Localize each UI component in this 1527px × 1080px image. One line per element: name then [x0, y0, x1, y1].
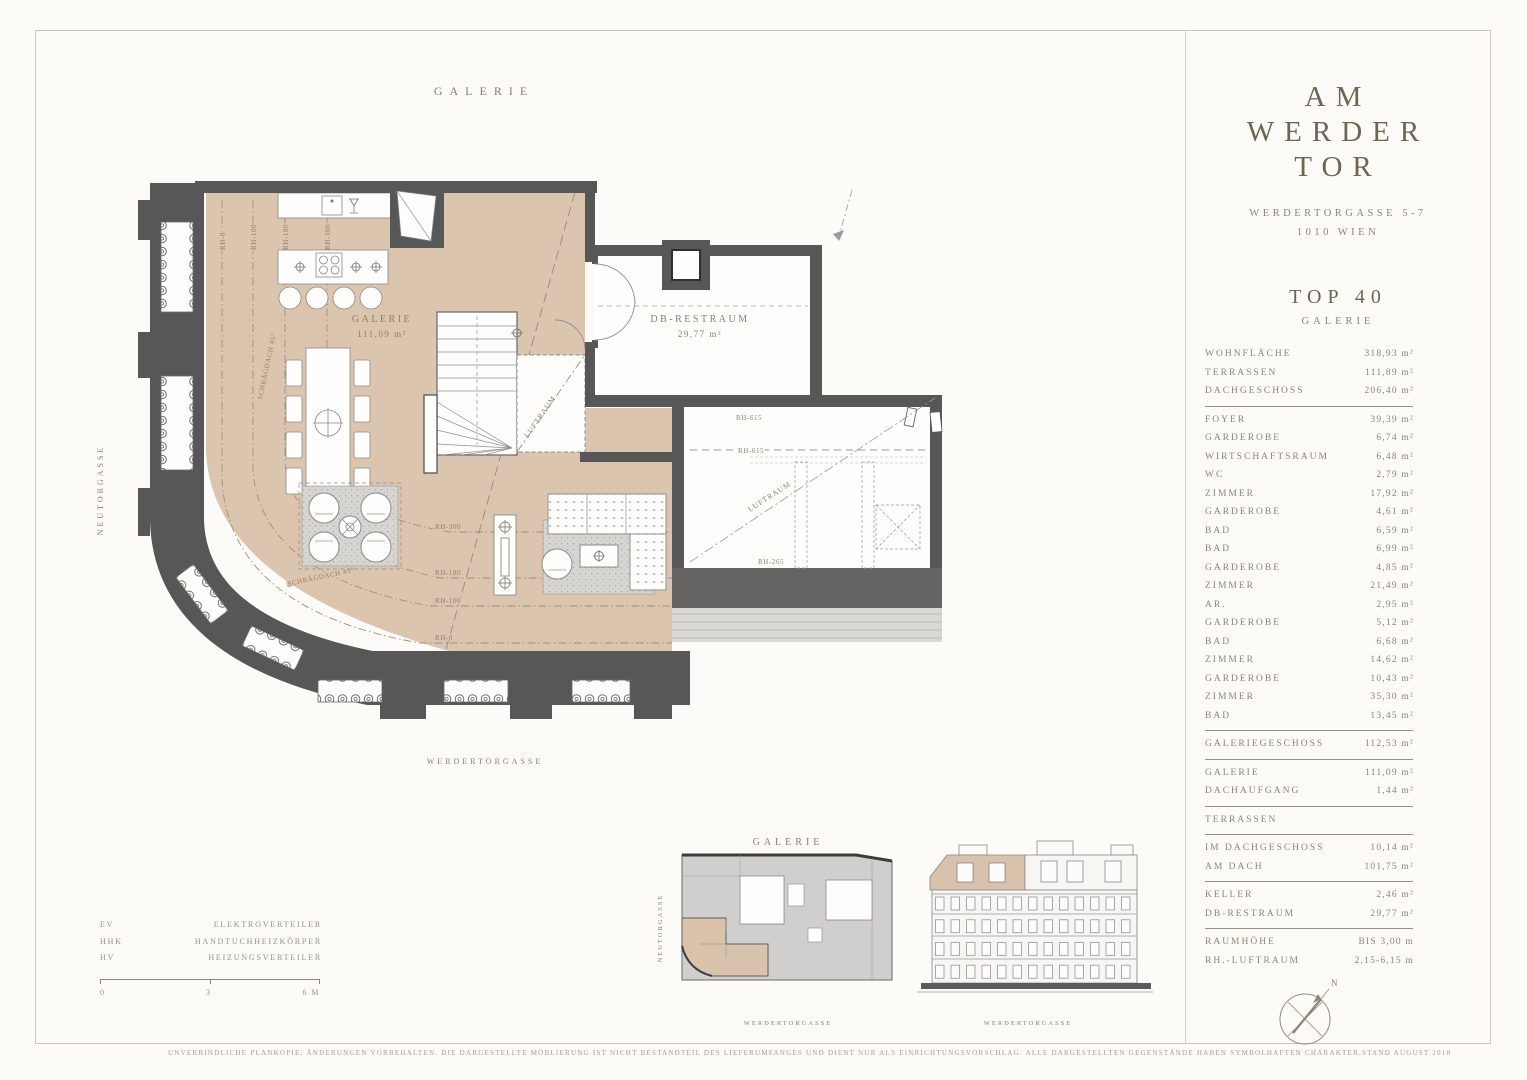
room-label: DACHGESCHOSS [1205, 382, 1305, 401]
stair-wall-stub [424, 395, 437, 473]
room-area-value: 6,48 m² [1376, 448, 1414, 467]
disclaimer-row: UNVERBINDLICHE PLANKOPIE, ÄNDERUNGEN VOR… [168, 1049, 1402, 1057]
legend-label: ELEKTROVERTEILER [214, 917, 322, 934]
svg-text:RH-180: RH-180 [282, 224, 290, 250]
svg-text:RH-100: RH-100 [250, 224, 258, 250]
room-area-value: 39,39 m² [1370, 411, 1414, 430]
room-area-value: 2,79 m² [1376, 466, 1414, 485]
area-row: GARDEROBE4,85 m² [1205, 559, 1413, 578]
legend-abbr: EV [100, 917, 114, 934]
area-row: GARDEROBE5,12 m² [1205, 614, 1413, 633]
room-area-value: 2,15-6,15 m [1355, 952, 1414, 971]
room-area-value: 4,61 m² [1376, 503, 1414, 522]
plan-title: GALERIE [434, 84, 534, 98]
area-row: WOHNFLÄCHE318,93 m² [1205, 345, 1413, 364]
room-label: ZIMMER [1205, 577, 1255, 596]
room-label: BAD [1205, 707, 1231, 726]
floor-plan: GALERIE RH-0 RH-100 RH-180 RH-300 RH-0 R… [50, 50, 1030, 790]
room-area-value: BIS 3,00 m [1358, 933, 1414, 952]
scale-mid: 3 [206, 988, 212, 997]
room-label: BAD [1205, 633, 1231, 652]
area-row: AM DACH101,75 m² [1205, 858, 1413, 877]
svg-text:RH-265: RH-265 [758, 558, 784, 566]
legend-row: HHKHANDTUCHHEIZKÖRPER [100, 934, 322, 951]
logo-line: AM [1186, 80, 1490, 115]
area-row: AR.2,95 m² [1205, 596, 1413, 615]
svg-text:RH-300: RH-300 [435, 523, 461, 531]
terrace-door [390, 184, 444, 248]
svg-text:RH-615: RH-615 [738, 447, 764, 455]
compass-rose: N [1255, 972, 1365, 1057]
room-label: WOHNFLÄCHE [1205, 345, 1292, 364]
room-area-value: 318,93 m² [1364, 345, 1414, 364]
area-row: GARDEROBE10,43 m² [1205, 670, 1413, 689]
svg-text:29,77 m²: 29,77 m² [678, 329, 722, 339]
area-row: GALERIE111,09 m² [1205, 764, 1413, 783]
room-area-value: 6,99 m² [1376, 540, 1414, 559]
chimney [662, 240, 710, 290]
area-row: TERRASSEN [1205, 811, 1413, 830]
room-area-value: 6,59 m² [1376, 522, 1414, 541]
legend-row: HVHEIZUNGSVERTEILER [100, 950, 322, 967]
area-row: RH.-LUFTRAUM2,15-6,15 m [1205, 952, 1413, 971]
address-line: WERDERTORGASSE 5-7 [1186, 204, 1490, 223]
room-label: AM DACH [1205, 858, 1264, 877]
room-label: BAD [1205, 522, 1231, 541]
room-area-value: 206,40 m² [1364, 382, 1414, 401]
address-line: 1010 WIEN [1186, 223, 1490, 242]
room-label: WC [1205, 466, 1224, 485]
svg-text:RH-300: RH-300 [324, 224, 332, 250]
room-label: GALERIE [1205, 764, 1260, 783]
room-area-value: 112,53 m² [1365, 735, 1414, 754]
towel-radiator [494, 515, 516, 595]
svg-text:RH-100: RH-100 [435, 597, 461, 605]
area-row: DACHAUFGANG1,44 m² [1205, 782, 1413, 801]
room-area-value: 2,46 m² [1376, 886, 1414, 905]
svg-text:RH-0: RH-0 [219, 232, 227, 250]
lounge-seating [299, 483, 401, 569]
staircase [424, 312, 523, 473]
table-divider [1205, 806, 1413, 807]
room-area-value: 17,92 m² [1370, 485, 1414, 504]
legend-label: HANDTUCHHEIZKÖRPER [195, 934, 322, 951]
room-area-value: 13,45 m² [1370, 707, 1414, 726]
room-area-value: 111,89 m² [1365, 364, 1414, 383]
room-label: GARDEROBE [1205, 670, 1281, 689]
area-row: GALERIEGESCHOSS112,53 m² [1205, 735, 1413, 754]
revision-date: STAND AUGUST 2018 [1362, 1049, 1451, 1057]
area-row: BAD6,68 m² [1205, 633, 1413, 652]
room-label: GARDEROBE [1205, 503, 1281, 522]
room-area-value: 6,74 m² [1376, 429, 1414, 448]
area-row: BAD6,99 m² [1205, 540, 1413, 559]
logo-line: WERDER [1186, 115, 1490, 150]
area-row: RAUMHÖHEBIS 3,00 m [1205, 933, 1413, 952]
room-label: GALERIEGESCHOSS [1205, 735, 1324, 754]
elevation-unit-highlight [930, 855, 1025, 890]
table-divider [1205, 730, 1413, 731]
roof-band [672, 568, 942, 642]
room-label: GARDEROBE [1205, 429, 1281, 448]
area-row: ZIMMER35,30 m² [1205, 688, 1413, 707]
room-area-value: 1,44 m² [1376, 782, 1414, 801]
area-row: GARDEROBE4,61 m² [1205, 503, 1413, 522]
brand-logo: AM WERDER TOR [1186, 80, 1490, 185]
room-label: ZIMMER [1205, 688, 1255, 707]
armchair [542, 549, 572, 579]
svg-text:RH-615: RH-615 [736, 414, 762, 422]
section-arrow [833, 190, 852, 241]
unit-number: TOP 40 [1186, 286, 1490, 309]
area-row: DB-RESTRAUM29,77 m² [1205, 905, 1413, 924]
legend-row: EVELEKTROVERTEILER [100, 917, 322, 934]
room-label: TERRASSEN [1205, 811, 1277, 830]
area-row: ZIMMER14,62 m² [1205, 651, 1413, 670]
kitchen-island [278, 250, 388, 309]
room-area-value: 35,30 m² [1370, 688, 1414, 707]
room-label: DB-RESTRAUM [1205, 905, 1295, 924]
table-divider [1205, 928, 1413, 929]
room-label: FOYER [1205, 411, 1246, 430]
svg-text:DB-RESTRAUM: DB-RESTRAUM [650, 314, 749, 325]
room-label: BAD [1205, 540, 1231, 559]
svg-text:111,09 m²: 111,09 m² [357, 329, 407, 339]
scale-end: 6 M [302, 988, 320, 997]
elevation-street-label: WERDERTORGASSE [984, 1020, 1073, 1027]
street-label-bottom: WERDERTORGASSE [427, 757, 544, 766]
area-row: KELLER2,46 m² [1205, 886, 1413, 905]
area-row: WC2,79 m² [1205, 466, 1413, 485]
luftraum-void: LUFTRAUM [517, 355, 585, 452]
mini-plan-thumbnail: GALERIE NEUTORGASSE WERDERTORGASSE [640, 828, 905, 1028]
room-label: ZIMMER [1205, 485, 1255, 504]
room-area-value: 6,68 m² [1376, 633, 1414, 652]
plan-sheet: GALERIE RH-0 RH-100 RH-180 RH-300 RH-0 R… [0, 0, 1527, 1080]
legend-abbr: HHK [100, 934, 123, 951]
svg-text:RH-0: RH-0 [435, 634, 453, 642]
room-area-value: 2,95 m² [1376, 596, 1414, 615]
area-row: ZIMMER17,92 m² [1205, 485, 1413, 504]
area-row: DACHGESCHOSS206,40 m² [1205, 382, 1413, 401]
room-area-value: 5,12 m² [1376, 614, 1414, 633]
room-area-value: 29,77 m² [1370, 905, 1414, 924]
svg-text:RH-180: RH-180 [435, 569, 461, 577]
room-label: TERRASSEN [1205, 364, 1277, 383]
table-divider [1205, 406, 1413, 407]
room-label: KELLER [1205, 886, 1253, 905]
area-row: ZIMMER21,49 m² [1205, 577, 1413, 596]
legend-abbr: HV [100, 950, 115, 967]
area-row: IM DACHGESCHOSS10,14 m² [1205, 839, 1413, 858]
table-divider [1205, 881, 1413, 882]
area-table: WOHNFLÄCHE318,93 m²TERRASSEN111,89 m²DAC… [1205, 345, 1413, 970]
room-area-value: 14,62 m² [1370, 651, 1414, 670]
room-area-value: 4,85 m² [1376, 559, 1414, 578]
room-label: WIRTSCHAFTSRAUM [1205, 448, 1329, 467]
room-label: AR. [1205, 596, 1227, 615]
svg-text:GALERIE: GALERIE [352, 314, 412, 325]
room-label: ZIMMER [1205, 651, 1255, 670]
legend-label: HEIZUNGSVERTEILER [208, 950, 322, 967]
street-label-left: NEUTORGASSE [96, 445, 105, 536]
area-row: BAD6,59 m² [1205, 522, 1413, 541]
room-area-value: 10,43 m² [1370, 670, 1414, 689]
scale-bar: 0 3 6 M [100, 979, 320, 999]
area-row: WIRTSCHAFTSRAUM6,48 m² [1205, 448, 1413, 467]
disclaimer-text: UNVERBINDLICHE PLANKOPIE, ÄNDERUNGEN VOR… [168, 1049, 1362, 1057]
area-row: FOYER39,39 m² [1205, 411, 1413, 430]
mini-street-bottom: WERDERTORGASSE [744, 1020, 833, 1027]
room-area-value: 10,14 m² [1370, 839, 1414, 858]
logo-line: TOR [1186, 150, 1490, 185]
north-needle [1293, 999, 1321, 1033]
table-divider [1205, 759, 1413, 760]
area-row: GARDEROBE6,74 m² [1205, 429, 1413, 448]
room-area-value: 21,49 m² [1370, 577, 1414, 596]
table-divider [1205, 834, 1413, 835]
wall-window [930, 412, 942, 433]
area-row: TERRASSEN111,89 m² [1205, 364, 1413, 383]
mini-plan-title: GALERIE [753, 837, 824, 848]
area-row: BAD13,45 m² [1205, 707, 1413, 726]
room-label: GARDEROBE [1205, 559, 1281, 578]
room-label: RAUMHÖHE [1205, 933, 1276, 952]
room-label: GARDEROBE [1205, 614, 1281, 633]
building-elevation-thumbnail: WERDERTORGASSE [915, 835, 1155, 1030]
room-area-value: 111,09 m² [1365, 764, 1414, 783]
room-label: RH.-LUFTRAUM [1205, 952, 1300, 971]
project-address: WERDERTORGASSE 5-7 1010 WIEN [1186, 204, 1490, 242]
sofa-area [542, 494, 666, 594]
unit-floor: GALERIE [1186, 316, 1490, 327]
mini-street-left: NEUTORGASSE [657, 894, 664, 963]
abbreviation-legend: EVELEKTROVERTEILERHHKHANDTUCHHEIZKÖRPERH… [100, 917, 322, 967]
room-label: IM DACHGESCHOSS [1205, 839, 1324, 858]
room-label: DACHAUFGANG [1205, 782, 1300, 801]
scale-start: 0 [100, 988, 106, 997]
room-area-value: 101,75 m² [1364, 858, 1414, 877]
north-label: N [1331, 978, 1339, 988]
